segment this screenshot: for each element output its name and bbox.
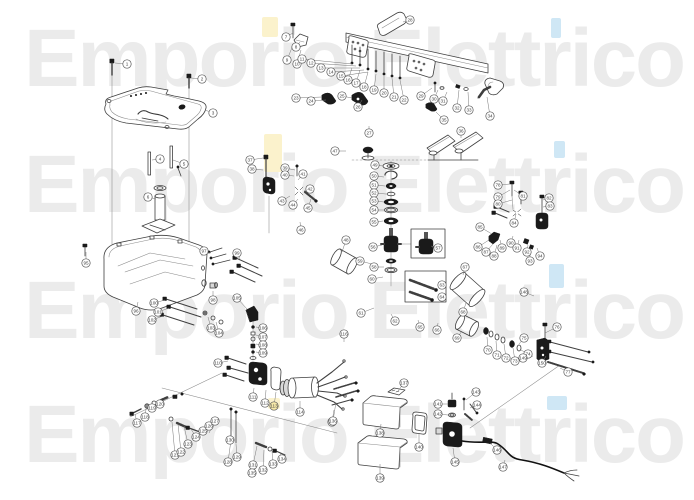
part-callout: 27	[365, 129, 373, 137]
part-callout: 140	[415, 443, 423, 451]
part-callout: 110	[214, 359, 222, 367]
svg-text:54: 54	[371, 208, 377, 213]
svg-text:60: 60	[369, 277, 375, 282]
svg-text:84: 84	[511, 221, 517, 226]
watermark-text-row4: Emporio Elettrico	[24, 389, 684, 480]
svg-text:117: 117	[133, 421, 141, 426]
svg-text:136: 136	[329, 419, 337, 424]
part-callout: 59	[356, 257, 364, 265]
svg-text:104: 104	[215, 331, 223, 336]
part-callout: 132	[259, 466, 267, 474]
svg-text:4: 4	[159, 157, 162, 162]
svg-text:63: 63	[439, 283, 445, 288]
svg-text:146: 146	[493, 448, 501, 453]
part-callout: 111	[249, 393, 257, 401]
part-callout: 78	[494, 181, 502, 189]
svg-text:9: 9	[286, 58, 289, 63]
svg-text:142: 142	[434, 412, 442, 417]
part-callout: 45	[304, 204, 312, 212]
svg-text:25: 25	[339, 94, 345, 99]
svg-text:105: 105	[233, 296, 241, 301]
svg-text:17: 17	[353, 81, 359, 86]
part-callout: 1	[123, 60, 131, 68]
svg-text:139: 139	[376, 476, 384, 481]
svg-text:80: 80	[495, 202, 501, 207]
part-callout: 147	[499, 463, 507, 471]
part-callout: 46	[297, 226, 305, 234]
svg-text:120: 120	[156, 402, 164, 407]
svg-text:101: 101	[154, 310, 162, 315]
svg-text:112: 112	[261, 401, 269, 406]
svg-text:122: 122	[177, 450, 185, 455]
watermark-highlight-mark	[264, 134, 282, 172]
svg-text:97: 97	[201, 249, 207, 254]
svg-text:85: 85	[477, 225, 483, 230]
part-callout: 41	[299, 170, 307, 178]
svg-text:20: 20	[381, 91, 387, 96]
part-callout: 53	[370, 197, 378, 205]
svg-text:5: 5	[183, 162, 186, 167]
svg-text:56: 56	[370, 245, 376, 250]
part-callout: 108	[259, 341, 267, 349]
svg-text:2: 2	[201, 77, 204, 82]
part-callout: 114	[296, 408, 304, 416]
svg-text:53: 53	[371, 199, 377, 204]
svg-text:61: 61	[358, 311, 364, 316]
part-callout: 120	[156, 400, 164, 408]
svg-text:145: 145	[451, 460, 459, 465]
part-callout: 97	[200, 247, 208, 255]
svg-text:93: 93	[527, 259, 533, 264]
svg-text:94: 94	[537, 254, 543, 259]
svg-text:40: 40	[282, 173, 288, 178]
svg-text:129: 129	[233, 455, 241, 460]
svg-text:42: 42	[307, 187, 313, 192]
svg-text:116: 116	[340, 332, 348, 337]
part-callout: 61	[357, 309, 365, 317]
part-callout: 65	[416, 323, 424, 331]
watermark-highlight-mark	[262, 17, 278, 37]
svg-text:43: 43	[279, 199, 285, 204]
part-callout: 106	[259, 324, 267, 332]
svg-text:59: 59	[357, 259, 363, 264]
part-callout: 145	[451, 458, 459, 466]
part-callout: 12	[307, 59, 315, 67]
svg-text:51: 51	[371, 183, 377, 188]
svg-text:45: 45	[305, 206, 311, 211]
svg-text:113: 113	[270, 404, 278, 409]
part-callout: 55	[370, 218, 378, 226]
part-callout: 137	[400, 379, 408, 387]
svg-text:15: 15	[338, 74, 344, 79]
part-callout: 17	[352, 79, 360, 87]
svg-text:12: 12	[308, 61, 314, 66]
svg-text:108: 108	[259, 343, 267, 348]
svg-text:72: 72	[503, 356, 509, 361]
svg-text:107: 107	[259, 335, 267, 340]
svg-text:143: 143	[472, 390, 480, 395]
svg-text:29: 29	[418, 94, 424, 99]
part-callout: 102	[148, 316, 156, 324]
svg-text:44: 44	[290, 203, 296, 208]
svg-text:75: 75	[521, 336, 527, 341]
svg-text:21: 21	[391, 95, 397, 100]
svg-text:19: 19	[371, 88, 377, 93]
svg-text:57: 57	[435, 246, 441, 251]
svg-text:134: 134	[278, 457, 286, 462]
watermark-highlight-mark	[551, 18, 561, 38]
svg-text:58: 58	[371, 265, 377, 270]
part-callout: 7	[282, 33, 290, 41]
part-callout: 2	[198, 75, 206, 83]
svg-text:119: 119	[148, 406, 156, 411]
part-callout: 9	[283, 56, 291, 64]
part-callout: 63	[438, 281, 446, 289]
svg-text:30: 30	[431, 97, 437, 102]
part-callout: 13	[317, 64, 325, 72]
part-callout: 99	[233, 249, 241, 257]
part-callout: 104	[215, 329, 223, 337]
part-callout: 43	[278, 197, 286, 205]
svg-text:138: 138	[376, 431, 384, 436]
part-callout: 8	[292, 43, 300, 51]
part-callout: 62	[391, 317, 399, 325]
svg-text:6: 6	[147, 195, 150, 200]
part-callout: 31	[439, 97, 447, 105]
svg-text:109: 109	[259, 351, 267, 356]
part-callout: 29	[417, 92, 425, 100]
svg-text:47: 47	[332, 149, 338, 154]
svg-text:140: 140	[415, 445, 423, 450]
part-callout: 23	[292, 94, 300, 102]
part-callout: 72	[502, 354, 510, 362]
svg-text:78: 78	[495, 183, 501, 188]
svg-text:103: 103	[207, 326, 215, 331]
svg-text:14: 14	[328, 70, 334, 75]
svg-text:144: 144	[473, 403, 481, 408]
svg-text:128: 128	[224, 460, 232, 465]
part-callout: 143	[472, 388, 480, 396]
part-callout: 11	[298, 55, 306, 63]
part-callout: 35	[440, 116, 448, 124]
part-callout: 73	[511, 357, 519, 365]
svg-text:65: 65	[417, 325, 423, 330]
part-callout: 129	[233, 453, 241, 461]
svg-text:11: 11	[300, 57, 305, 62]
svg-text:133: 133	[269, 462, 277, 467]
cover-box-2	[358, 436, 407, 469]
svg-text:102: 102	[148, 318, 156, 323]
part-callout: 49	[371, 161, 379, 169]
svg-text:64: 64	[439, 295, 445, 300]
svg-text:22: 22	[401, 98, 407, 103]
part-callout: 92	[523, 248, 531, 256]
svg-text:124: 124	[192, 435, 200, 440]
svg-text:127: 127	[211, 419, 219, 424]
svg-text:38: 38	[249, 167, 255, 172]
part-callout: 3	[209, 109, 217, 117]
svg-text:111: 111	[250, 395, 257, 400]
part-callout: 71	[493, 351, 501, 359]
part-callout: 101	[154, 308, 162, 316]
svg-text:114: 114	[296, 410, 304, 415]
svg-text:137: 137	[400, 381, 408, 386]
part-callout: 142	[434, 410, 442, 418]
part-callout: 89	[498, 244, 506, 252]
part-callout: 60	[368, 275, 376, 283]
svg-text:87: 87	[483, 250, 489, 255]
svg-text:33: 33	[466, 108, 472, 113]
part-callout: 28	[406, 16, 414, 24]
svg-text:24: 24	[308, 99, 314, 104]
part-callout: 103	[207, 324, 215, 332]
svg-text:118: 118	[141, 415, 149, 420]
part-callout: 57	[434, 244, 442, 252]
svg-text:28: 28	[407, 18, 413, 23]
svg-text:92: 92	[524, 250, 530, 255]
svg-text:36: 36	[458, 129, 464, 134]
svg-text:27: 27	[366, 131, 372, 136]
svg-text:110: 110	[214, 361, 222, 366]
part-callout: 22	[400, 96, 408, 104]
part-callout: 69	[453, 334, 461, 342]
part-callout: 146	[493, 446, 501, 454]
svg-text:41: 41	[300, 172, 306, 177]
part-callout: 36	[457, 127, 465, 135]
svg-text:76: 76	[554, 325, 560, 330]
part-callout: 98	[209, 296, 217, 304]
part-callout: 33	[465, 106, 473, 114]
part-callout: 86	[474, 243, 482, 251]
part-callout: 119	[148, 404, 156, 412]
part-callout: 130	[226, 436, 234, 444]
svg-text:98: 98	[210, 298, 216, 303]
svg-text:141: 141	[434, 402, 442, 407]
svg-text:106: 106	[259, 326, 267, 331]
part-callout: 52	[370, 189, 378, 197]
part-callout: 123	[184, 440, 192, 448]
svg-text:18: 18	[361, 85, 367, 90]
svg-text:89: 89	[499, 246, 505, 251]
parts-diagram-page: Emporio Elettrico Emporio Elettrico Empo…	[0, 0, 694, 500]
svg-text:23: 23	[293, 96, 299, 101]
part-callout: 34	[486, 112, 494, 120]
svg-text:8: 8	[295, 45, 298, 50]
svg-text:3: 3	[212, 111, 215, 116]
watermark-text-row2: Emporio Elettrico	[24, 139, 684, 230]
part-callout: 66	[433, 326, 441, 334]
part-callout: 83	[546, 202, 554, 210]
part-callout: 113	[270, 402, 278, 410]
part-callout: 50	[370, 172, 378, 180]
part-callout: 68	[459, 308, 467, 316]
part-callout: 138	[376, 429, 384, 437]
part-callout: 21	[390, 93, 398, 101]
svg-text:66: 66	[434, 328, 440, 333]
part-callout: 42	[306, 185, 314, 193]
part-callout: 81	[519, 192, 527, 200]
part-callout: 112	[261, 399, 269, 407]
part-callout: 128	[224, 458, 232, 466]
svg-text:77: 77	[565, 370, 571, 375]
svg-text:100: 100	[150, 301, 158, 306]
part-callout: 134	[278, 455, 286, 463]
part-callout: 139	[376, 474, 384, 482]
part-callout: 51	[370, 181, 378, 189]
svg-text:52: 52	[371, 191, 377, 196]
svg-text:70: 70	[485, 348, 491, 353]
svg-text:69: 69	[454, 336, 460, 341]
part-callout: 5	[180, 160, 188, 168]
svg-text:90: 90	[508, 241, 514, 246]
part-callout: 87	[482, 248, 490, 256]
watermark-text-row1: Emporio Elettrico	[24, 13, 684, 104]
part-callout: 44	[289, 201, 297, 209]
exploded-parts-diagram: Emporio Elettrico Emporio Elettrico Empo…	[0, 0, 694, 500]
watermark-highlight-mark	[547, 396, 567, 410]
part-callout: 150	[538, 359, 546, 367]
svg-text:1: 1	[126, 62, 129, 67]
part-callout: 47	[331, 147, 339, 155]
part-callout: 88	[490, 252, 498, 260]
part-callout: 25	[338, 92, 346, 100]
svg-text:37: 37	[247, 158, 253, 163]
svg-text:150: 150	[538, 361, 546, 366]
part-callout: 80	[494, 200, 502, 208]
svg-text:71: 71	[494, 353, 500, 358]
svg-text:73: 73	[512, 359, 518, 364]
part-callout: 149	[519, 354, 527, 362]
watermark-highlight-mark	[549, 264, 564, 288]
part-callout: 18	[360, 83, 368, 91]
svg-text:32: 32	[454, 106, 460, 111]
part-callout: 122	[177, 448, 185, 456]
part-callout: 131	[249, 461, 257, 469]
part-callout: 24	[307, 97, 315, 105]
part-callout: 118	[141, 413, 149, 421]
gasket-ring	[412, 412, 427, 434]
part-callout: 14	[327, 68, 335, 76]
svg-text:130: 130	[226, 438, 234, 443]
svg-text:31: 31	[440, 99, 446, 104]
part-callout: 20	[380, 89, 388, 97]
part-callout: 94	[536, 252, 544, 260]
part-callout: 116	[340, 330, 348, 338]
svg-text:96: 96	[133, 309, 139, 314]
svg-text:83: 83	[547, 204, 553, 209]
svg-text:81: 81	[520, 194, 526, 199]
part-callout: 32	[453, 104, 461, 112]
part-callout: 58	[370, 263, 378, 271]
part-callout: 40	[281, 171, 289, 179]
svg-text:13: 13	[318, 66, 324, 71]
svg-text:88: 88	[491, 254, 497, 259]
svg-text:123: 123	[184, 442, 192, 447]
part-callout: 100	[150, 299, 158, 307]
svg-text:68: 68	[460, 310, 466, 315]
svg-text:91: 91	[514, 246, 520, 251]
part-callout: 4	[156, 155, 164, 163]
svg-text:26: 26	[355, 105, 361, 110]
svg-text:67: 67	[462, 265, 468, 270]
part-callout: 136	[329, 417, 337, 425]
svg-text:131: 131	[249, 463, 257, 468]
svg-text:7: 7	[285, 35, 288, 40]
part-callout: 54	[370, 206, 378, 214]
part-callout: 105	[233, 294, 241, 302]
inset-box-valve	[411, 229, 445, 258]
svg-text:39: 39	[282, 166, 288, 171]
part-callout: 64	[438, 293, 446, 301]
svg-text:147: 147	[499, 465, 507, 470]
part-callout: 37	[246, 156, 254, 164]
part-callout: 95	[82, 259, 90, 267]
svg-text:149: 149	[519, 356, 527, 361]
svg-text:99: 99	[234, 251, 240, 256]
svg-text:82: 82	[546, 196, 552, 201]
part-callout: 133	[269, 460, 277, 468]
part-callout: 127	[211, 417, 219, 425]
svg-text:62: 62	[392, 319, 398, 324]
part-callout: 85	[476, 223, 484, 231]
part-callout: 75	[520, 334, 528, 342]
svg-text:95: 95	[83, 261, 89, 266]
part-callout: 84	[510, 219, 518, 227]
svg-text:132: 132	[259, 468, 267, 473]
part-callout: 70	[484, 346, 492, 354]
part-callout: 19	[370, 86, 378, 94]
part-callout: 48	[342, 236, 350, 244]
part-callout: 144	[473, 401, 481, 409]
part-callout: 26	[354, 103, 362, 111]
part-callout: 77	[564, 368, 572, 376]
part-callout: 124	[192, 433, 200, 441]
svg-text:55: 55	[371, 220, 377, 225]
part-callout: 82	[545, 194, 553, 202]
part-callout: 96	[132, 307, 140, 315]
svg-text:16: 16	[345, 78, 351, 83]
svg-text:86: 86	[475, 245, 481, 250]
part-callout: 148	[520, 288, 528, 296]
part-callout: 93	[526, 257, 534, 265]
part-callout: 141	[434, 400, 442, 408]
part-callout: 30	[430, 95, 438, 103]
part-callout: 109	[259, 349, 267, 357]
svg-text:46: 46	[298, 228, 304, 233]
svg-text:35: 35	[441, 118, 447, 123]
part-callout: 117	[133, 419, 141, 427]
svg-text:135: 135	[248, 471, 256, 476]
part-callout: 76	[553, 323, 561, 331]
part-callout: 91	[513, 244, 521, 252]
part-callout: 38	[248, 165, 256, 173]
part-callout: 16	[344, 76, 352, 84]
part-callout: 6	[144, 193, 152, 201]
part-callout: 67	[461, 263, 469, 271]
svg-text:34: 34	[487, 114, 493, 119]
part-callout: 107	[259, 333, 267, 341]
svg-text:50: 50	[371, 174, 377, 179]
svg-text:148: 148	[520, 290, 528, 295]
part-callout: 56	[369, 243, 377, 251]
watermark-highlight-mark	[554, 141, 565, 158]
svg-text:48: 48	[343, 238, 349, 243]
svg-text:49: 49	[372, 163, 378, 168]
svg-text:79: 79	[495, 195, 501, 200]
part-callout: 135	[248, 469, 256, 477]
